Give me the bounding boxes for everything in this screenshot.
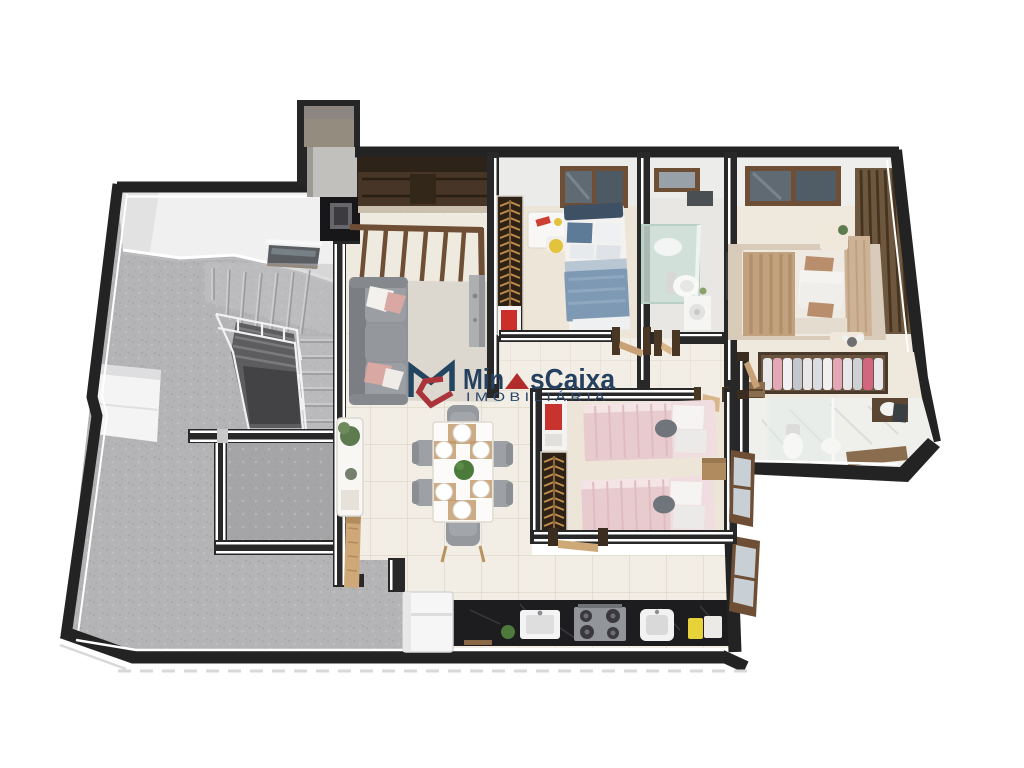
svg-text:I M O B I L I Á R I A: I M O B I L I Á R I A xyxy=(466,391,605,404)
